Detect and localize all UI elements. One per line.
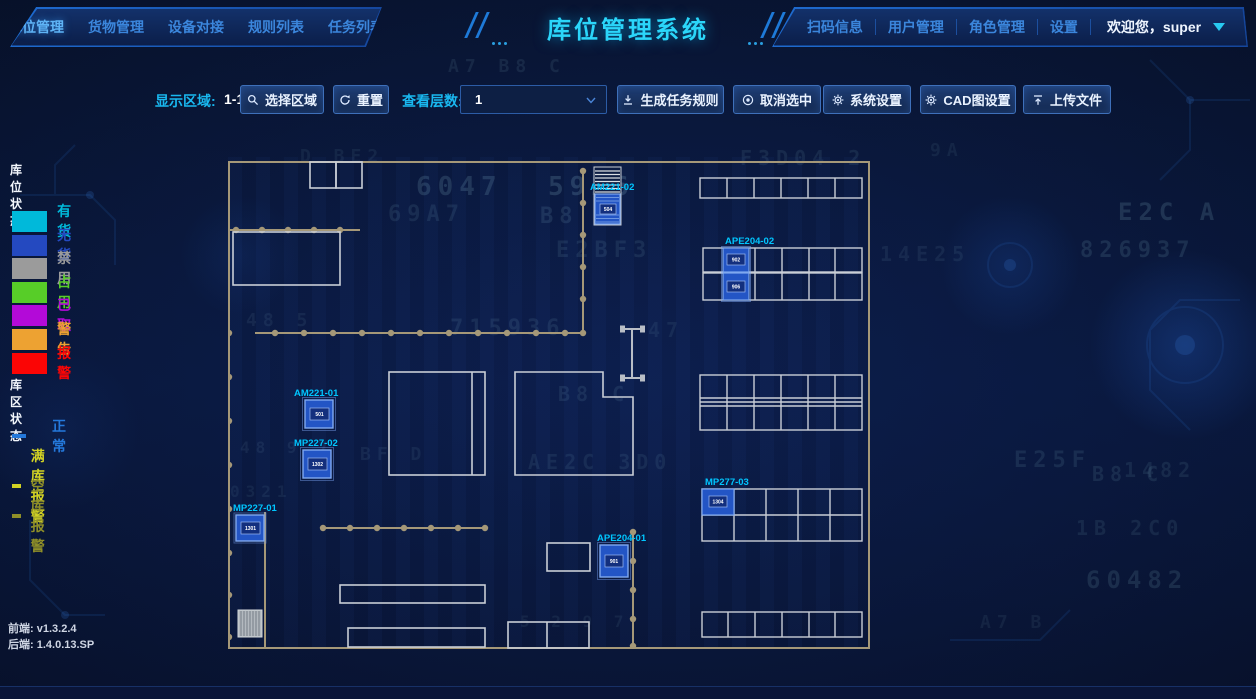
slot-cell-number: 501	[315, 412, 324, 418]
download-icon	[622, 94, 634, 106]
rooms	[233, 162, 633, 648]
frontend-version-label: 前端:	[8, 623, 34, 635]
cancel-selected-label: 取消选中	[760, 90, 812, 109]
rack-label: MP227-01	[233, 503, 278, 514]
chevron-down-icon	[586, 97, 596, 104]
display-area-label: 显示区域:	[155, 91, 216, 111]
cad-settings-button[interactable]: CAD图设置	[920, 85, 1016, 114]
upload-file-label: 上传文件	[1050, 90, 1102, 109]
rack-label: MP227-02	[294, 438, 338, 449]
page-title: 库位管理系统	[547, 10, 709, 45]
backend-version-value: 1.4.0.13.SP	[37, 639, 95, 651]
backend-version-label: 后端:	[8, 639, 34, 651]
header-left-panel: 库位管理 货物管理 设备对接 规则列表 任务列表	[10, 7, 382, 47]
decorative-dots	[492, 42, 507, 45]
rack-label: APE204-01	[597, 533, 647, 544]
slot-cell-number: 504	[604, 207, 613, 213]
nav-item-user-management[interactable]: 用户管理	[876, 17, 956, 37]
nav-item-goods-management[interactable]: 货物管理	[76, 17, 156, 37]
slot-cell-number: 902	[732, 258, 741, 264]
system-settings-button[interactable]: 系统设置	[823, 85, 911, 114]
refresh-icon	[339, 94, 351, 106]
slot-box-ape204-02[interactable]: 902 906 APE204-02	[722, 236, 775, 302]
reset-label: 重置	[357, 90, 383, 109]
rack-grid-mid-right[interactable]	[700, 375, 862, 430]
generate-task-rule-button[interactable]: 生成任务规则	[617, 85, 724, 114]
slot-cell-number: 901	[610, 559, 619, 565]
legend-line-swatch	[12, 514, 21, 518]
slot-box-ape204-01[interactable]: 901 APE204-01	[597, 533, 647, 580]
layer-label: 查看层数:	[402, 91, 463, 111]
legend-line-swatch	[12, 434, 26, 438]
slot-box-am221-01[interactable]: 501 AM221-01	[294, 388, 339, 431]
legend-swatch	[12, 353, 47, 374]
nav-item-settings[interactable]: 设置	[1038, 17, 1090, 37]
gear-icon	[832, 94, 844, 106]
nav-item-device-docking[interactable]: 设备对接	[156, 17, 236, 37]
footer-bar	[0, 686, 1256, 699]
select-area-button[interactable]: 选择区域	[240, 85, 324, 114]
slot-cell-number: 906	[732, 285, 741, 291]
cancel-circle-icon	[742, 94, 754, 106]
slot-cell-number: 1302	[312, 462, 323, 468]
frontend-version-value: v1.3.2.4	[37, 623, 77, 635]
welcome-user-text: 欢迎您，super	[1091, 17, 1209, 37]
gear-icon	[925, 94, 937, 106]
legend-label: 报警	[57, 343, 81, 383]
cad-settings-label: CAD图设置	[943, 90, 1010, 109]
nav-item-rule-list[interactable]: 规则列表	[236, 17, 316, 37]
generate-task-rule-label: 生成任务规则	[640, 90, 718, 109]
legend-item-area-empty-alarm: 空库报警	[12, 476, 57, 556]
nav-item-scan-info[interactable]: 扫码信息	[795, 17, 875, 37]
slot-cell-number: 1304	[712, 500, 723, 506]
rack-grid-top-right[interactable]	[700, 178, 862, 198]
frontend-version: 前端: v1.3.2.4	[8, 620, 77, 636]
toolbar: 显示区域: 1-1-1 选择区域 重置 查看层数: 1 生成任务规则	[0, 85, 1256, 114]
legend-label: 空库报警	[31, 476, 57, 556]
warehouse-map[interactable]: 504 AM221-02 902 906 APE204-02 501 AM221…	[228, 157, 870, 649]
slot-box-mp277-03[interactable]: 1304 MP277-03	[702, 477, 749, 515]
upload-icon	[1032, 94, 1044, 106]
select-area-label: 选择区域	[265, 90, 317, 109]
layer-select-dropdown[interactable]: 1	[460, 85, 607, 114]
reset-button[interactable]: 重置	[333, 85, 389, 114]
dock-door	[238, 610, 262, 637]
rack-label: APE204-02	[725, 236, 774, 247]
rack-label: AM221-01	[294, 388, 339, 399]
wall-bracket	[621, 327, 644, 381]
user-menu-chevron-icon[interactable]	[1213, 23, 1225, 31]
search-icon	[247, 94, 259, 106]
wall-nodes	[228, 168, 636, 649]
rack-grid-bottom-right[interactable]	[702, 612, 862, 637]
header-right-panel: 扫码信息 用户管理 角色管理 设置 欢迎您，super	[772, 7, 1248, 47]
upload-file-button[interactable]: 上传文件	[1023, 85, 1111, 114]
slot-cell-number: 1301	[245, 526, 256, 532]
stairs-rack-am221-02[interactable]: 504 AM221-02	[590, 167, 634, 225]
decorative-dots	[748, 42, 763, 45]
layer-selected-value: 1	[475, 92, 482, 107]
system-settings-label: 系统设置	[850, 90, 902, 109]
slot-box-mp227-02[interactable]: 1302 MP227-02	[294, 438, 338, 481]
backend-version: 后端: 1.4.0.13.SP	[8, 636, 94, 652]
rack-label: AM221-02	[590, 182, 634, 193]
slot-box-mp227-01[interactable]: 1301 MP227-01	[233, 503, 278, 543]
rack-label: MP277-03	[705, 477, 749, 488]
cancel-selected-button[interactable]: 取消选中	[733, 85, 821, 114]
nav-item-role-management[interactable]: 角色管理	[957, 17, 1037, 37]
